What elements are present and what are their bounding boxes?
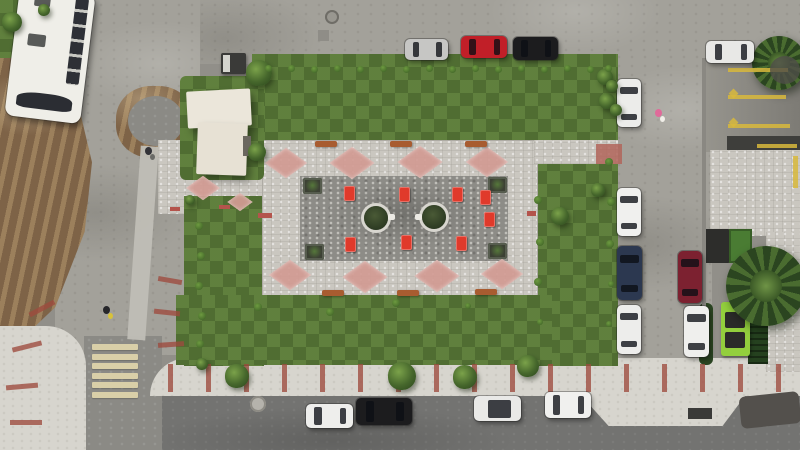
parked-car <box>306 404 353 428</box>
car-window <box>620 313 638 320</box>
ground-detail <box>223 55 230 72</box>
shrub <box>587 66 594 73</box>
person <box>103 306 110 314</box>
corner-planter <box>488 243 507 259</box>
tree-planter-circle <box>422 205 446 229</box>
park-bench <box>315 141 337 147</box>
car-window <box>621 341 638 347</box>
car-window <box>314 407 321 425</box>
kiosk-dark-roof <box>703 229 730 263</box>
shrub <box>334 65 341 72</box>
car-window <box>687 314 706 322</box>
red-paver-strip <box>510 364 515 392</box>
ground-detail <box>770 56 800 84</box>
ground-detail <box>250 396 266 412</box>
car-window <box>521 40 528 58</box>
tree-canopy <box>517 355 539 377</box>
red-paver-strip <box>358 364 363 392</box>
car-window <box>620 87 638 94</box>
shrub <box>534 278 542 286</box>
car-window <box>682 289 699 296</box>
shrub <box>536 238 544 246</box>
red-paver-strip <box>586 364 591 392</box>
shrub <box>403 66 410 73</box>
red-paver-strip <box>776 364 781 392</box>
tree-canopy <box>453 365 477 389</box>
corner-planter <box>305 244 324 260</box>
yellow-road-marking <box>728 95 786 99</box>
shrub <box>564 65 571 72</box>
shrub <box>518 65 525 72</box>
park-bench <box>475 289 497 295</box>
tree-canopy <box>610 104 622 116</box>
crosswalk-bar <box>92 363 138 369</box>
parked-car <box>617 79 641 127</box>
parked-car <box>356 398 412 425</box>
shrub <box>196 340 204 348</box>
parked-car <box>617 188 641 236</box>
parked-car <box>405 39 448 60</box>
shrub <box>606 240 614 248</box>
red-paver-strip <box>219 205 230 209</box>
corner-planter <box>303 178 322 194</box>
red-picnic-set <box>456 236 467 251</box>
wet-concrete-patch <box>128 96 184 146</box>
crosswalk-bar <box>92 344 138 350</box>
car-window <box>553 395 560 415</box>
car-window <box>396 402 403 421</box>
ground-detail <box>738 391 800 429</box>
tree-canopy <box>185 195 195 205</box>
shrub <box>254 303 262 311</box>
shrub <box>426 65 433 72</box>
parked-car <box>684 306 709 357</box>
parked-car <box>474 396 521 421</box>
red-paver-strip <box>168 364 173 392</box>
red-paver-strip <box>282 364 287 392</box>
shrub <box>607 198 615 206</box>
bus-windshield <box>16 90 74 113</box>
park-bench <box>390 141 412 147</box>
tree-canopy <box>388 362 416 390</box>
car-window <box>413 42 419 58</box>
shrub <box>465 303 471 309</box>
shrub <box>357 66 364 73</box>
palm-tree-bottom-right <box>726 246 800 326</box>
tree-canopy <box>591 183 605 197</box>
parked-car <box>513 37 558 60</box>
shrub <box>534 196 542 204</box>
red-paver-strip <box>700 364 705 392</box>
ground-detail <box>688 408 712 419</box>
yellow-road-marking <box>793 156 798 188</box>
shrub <box>195 222 203 230</box>
yellow-road-marking <box>757 144 797 148</box>
white-seat <box>415 214 422 220</box>
tree-canopy <box>38 4 50 16</box>
shrub <box>380 65 387 72</box>
ground-detail <box>325 10 339 24</box>
white-seat <box>388 214 395 220</box>
crosswalk-bar <box>92 373 138 379</box>
car-window <box>620 255 639 263</box>
tree-canopy <box>248 143 266 161</box>
tree-canopy <box>246 60 272 86</box>
car-window <box>469 39 476 56</box>
park-lawn-bottom <box>176 295 552 365</box>
ground-detail <box>318 30 329 41</box>
red-picnic-set <box>345 237 356 252</box>
red-paver-strip <box>170 207 180 211</box>
shrub <box>326 308 334 316</box>
parked-car <box>678 251 702 303</box>
car-window <box>366 401 374 422</box>
red-paver-strip <box>624 364 629 392</box>
shrub <box>195 282 203 290</box>
shrub <box>449 66 456 73</box>
tree-canopy <box>2 12 22 32</box>
person <box>145 147 152 155</box>
park-bench <box>397 290 419 296</box>
red-picnic-set <box>344 186 355 201</box>
red-picnic-set <box>399 187 410 202</box>
car-window <box>436 42 442 57</box>
red-paver-strip <box>206 364 211 392</box>
crosswalk-bar <box>92 354 138 360</box>
car-window <box>621 223 638 229</box>
car-window <box>578 396 584 414</box>
shrub <box>197 252 205 260</box>
bus-roof-hatch <box>27 33 46 47</box>
tree-planter-circle <box>364 206 388 230</box>
red-picnic-set <box>480 190 491 205</box>
red-paver-strip <box>10 420 42 425</box>
shrub <box>265 65 272 72</box>
car-window <box>681 259 699 267</box>
red-paver-strip <box>258 213 272 218</box>
car-window <box>340 408 346 425</box>
red-paver-strip <box>738 364 743 392</box>
bus-side-windows <box>66 0 90 86</box>
parked-car <box>461 36 507 58</box>
shrub <box>392 299 400 307</box>
parked-car <box>617 246 642 300</box>
tree-canopy <box>606 80 618 92</box>
parked-car <box>545 392 591 418</box>
yellow-road-marking <box>728 124 790 128</box>
park-bench <box>322 290 344 296</box>
crosswalk-bar <box>92 382 138 388</box>
car-window <box>621 285 639 292</box>
person <box>655 109 662 117</box>
red-picnic-set <box>401 235 412 250</box>
park-bench <box>465 141 487 147</box>
car-window <box>620 196 638 203</box>
car-window <box>545 40 551 56</box>
shrub <box>472 65 479 72</box>
ground-detail <box>702 58 706 312</box>
car-window <box>488 400 511 418</box>
shrub <box>605 65 612 72</box>
shrub <box>606 321 612 327</box>
red-paver-strip <box>662 364 667 392</box>
car-window <box>688 343 706 350</box>
shrub <box>608 281 614 287</box>
courtyard-pavement-upper <box>710 150 800 236</box>
red-paver-strip <box>527 211 536 216</box>
shrub <box>311 66 318 73</box>
shrub <box>495 66 502 73</box>
red-paver-strip <box>434 364 439 392</box>
shrub <box>537 319 543 325</box>
tree-canopy <box>196 358 208 370</box>
dumpster-lid <box>725 332 745 348</box>
parked-car <box>706 41 754 63</box>
shrub <box>198 312 206 320</box>
red-picnic-set <box>452 187 463 202</box>
parked-car <box>617 305 641 354</box>
tree-canopy <box>551 207 569 225</box>
car-window <box>494 39 500 54</box>
red-paver-strip <box>548 364 553 392</box>
aerial-photo-park-plaza <box>0 0 800 450</box>
car-window <box>741 44 747 59</box>
red-picnic-set <box>484 212 495 227</box>
tree-canopy <box>225 364 249 388</box>
gazebo-roof-lower <box>196 122 248 176</box>
shrub <box>605 158 613 166</box>
shrub <box>288 65 295 72</box>
crosswalk-bar <box>92 392 138 398</box>
shrub <box>541 66 548 73</box>
red-paver-strip <box>320 364 325 392</box>
car-window <box>715 44 722 61</box>
car-window <box>621 114 638 120</box>
